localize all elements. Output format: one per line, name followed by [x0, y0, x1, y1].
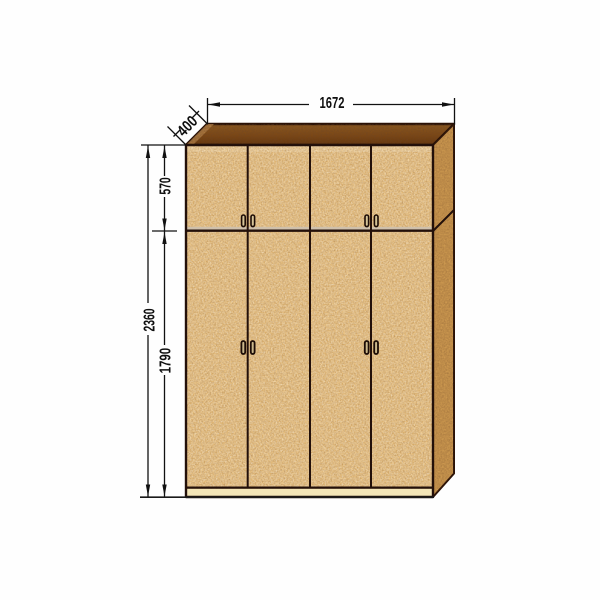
svg-text:2360: 2360 — [140, 308, 158, 331]
svg-text:570: 570 — [156, 177, 174, 194]
svg-text:1790: 1790 — [156, 348, 174, 374]
svg-text:1672: 1672 — [320, 93, 345, 112]
